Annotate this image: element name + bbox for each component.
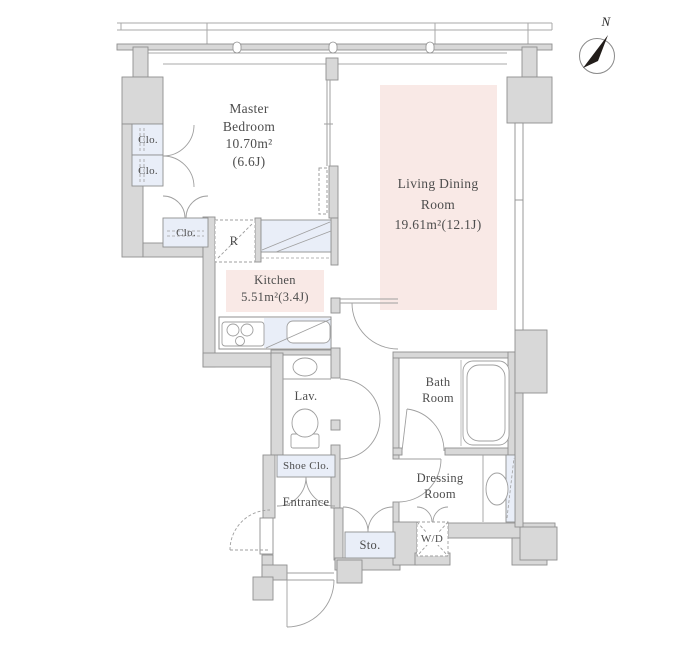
dressing-room-label: Dressing Room <box>417 470 464 502</box>
refrigerator-label-text: R <box>230 234 239 248</box>
dressing-fixtures <box>483 455 508 522</box>
entrance-label: Entrance <box>283 494 330 510</box>
room-name: Dressing <box>417 470 464 486</box>
room-name: Bedroom <box>223 118 275 136</box>
floor-plan-page: Master Bedroom 10.70m² (6.6J) Living Din… <box>0 0 700 650</box>
floor-plan-drawing <box>0 0 700 650</box>
room-area: 10.70m² <box>223 135 275 153</box>
lavatory-label: Lav. <box>295 388 318 404</box>
living-dining-label: Living Dining Room 19.61m²(12.1J) <box>395 174 482 236</box>
bath-fixtures <box>461 360 509 446</box>
north-label-text: N <box>602 14 611 29</box>
stove-burner <box>236 337 245 346</box>
washer-dryer-label-text: W/D <box>420 533 444 545</box>
shoe-closet-label-text: Shoe Clo. <box>283 460 329 472</box>
room-area: 5.51m²(3.4J) <box>241 289 309 306</box>
room-tatami: (6.6J) <box>223 153 275 171</box>
room-name: Living Dining <box>395 174 482 195</box>
living-right-wall <box>515 123 523 330</box>
toilet-bowl <box>292 409 318 437</box>
washer-dryer-label: W/D <box>420 532 444 546</box>
closet-upper-label: Clo. <box>138 133 158 147</box>
closet-label-text: Clo. <box>176 227 196 239</box>
master-bedroom-label: Master Bedroom 10.70m² (6.6J) <box>223 100 275 170</box>
room-name: Room <box>395 195 482 216</box>
storage-label-text: Sto. <box>360 538 381 552</box>
north-label: N <box>602 14 611 31</box>
bath-room-label: Bath Room <box>422 374 454 406</box>
bathtub-outer <box>463 361 509 445</box>
refrigerator-label: R <box>230 233 239 249</box>
storage-label: Sto. <box>360 537 381 553</box>
north-compass-icon <box>580 35 615 74</box>
room-name: Room <box>422 390 454 406</box>
dressing-basin <box>486 473 508 505</box>
lavatory-label-text: Lav. <box>295 389 318 403</box>
entrance-label-text: Entrance <box>283 495 330 509</box>
room-name: Bath <box>422 374 454 390</box>
wash-basin <box>293 358 317 376</box>
closet-lower-label: Clo. <box>138 164 158 178</box>
room-name: Room <box>417 486 464 502</box>
stove-burner <box>227 324 239 336</box>
room-name: Kitchen <box>241 272 309 289</box>
room-name: Master <box>223 100 275 118</box>
shoe-closet-label: Shoe Clo. <box>283 459 329 473</box>
kitchen-counter <box>219 317 331 349</box>
stove-burner <box>241 324 253 336</box>
closet-label-text: Clo. <box>138 165 158 177</box>
kitchen-sink <box>287 321 330 343</box>
closet-label-text: Clo. <box>138 134 158 146</box>
closet-hall-label: Clo. <box>176 226 196 240</box>
kitchen-label: Kitchen 5.51m²(3.4J) <box>241 272 309 306</box>
room-area: 19.61m²(12.1J) <box>395 215 482 236</box>
